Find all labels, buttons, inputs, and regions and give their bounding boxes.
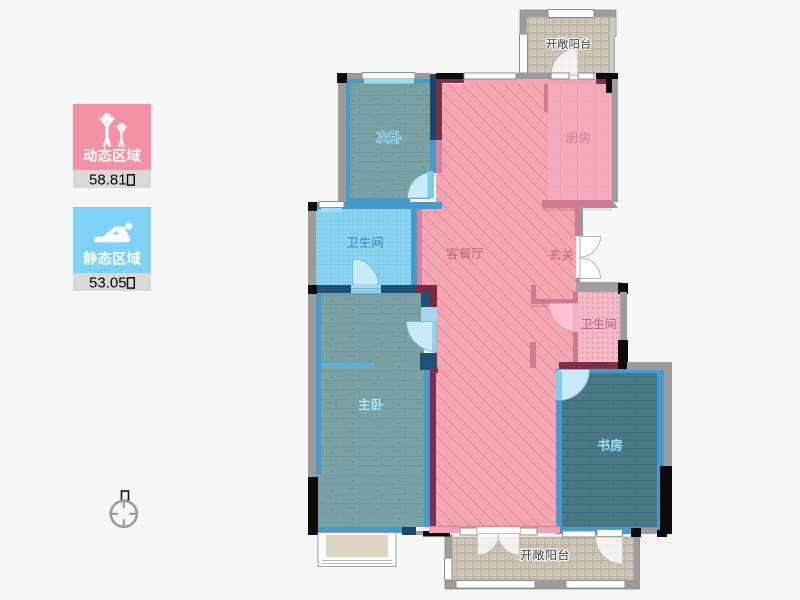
svg-text:53.05: 53.05 xyxy=(89,274,127,291)
svg-text:58.81: 58.81 xyxy=(89,171,127,188)
